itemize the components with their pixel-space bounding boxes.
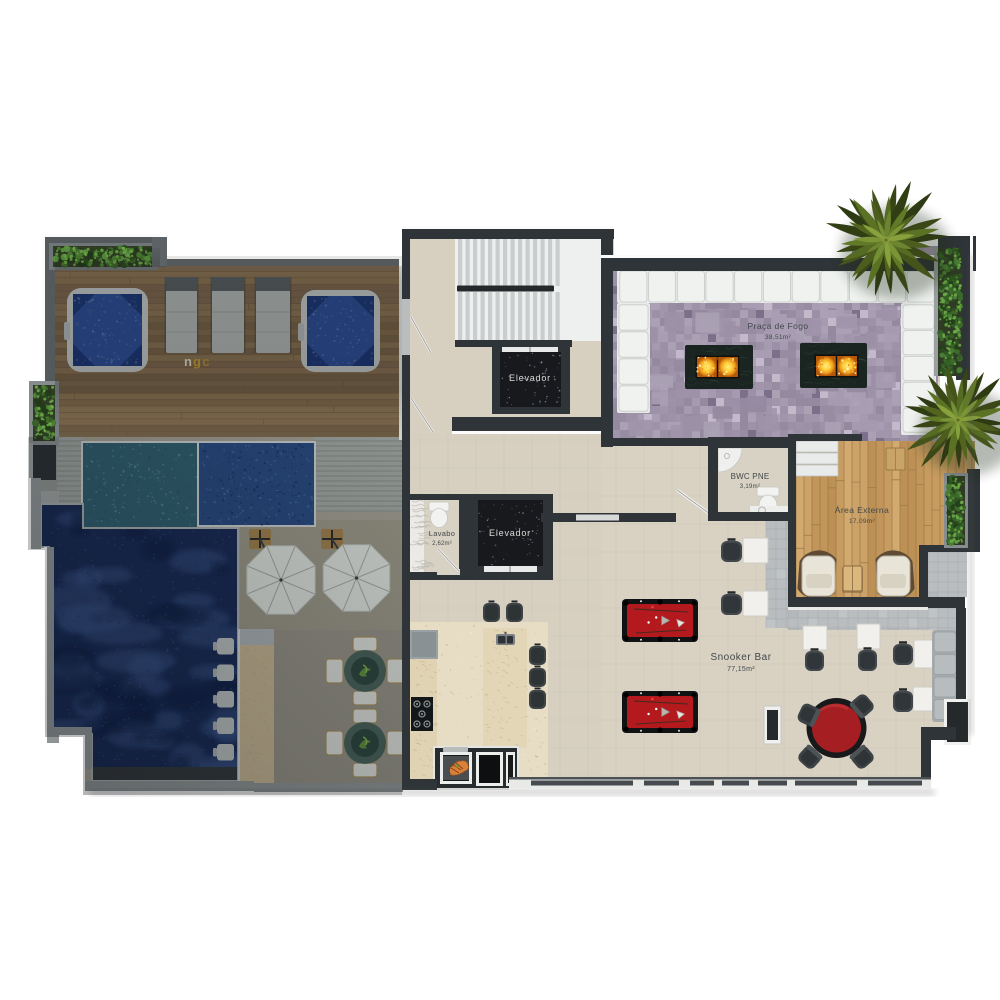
svg-text:Área Externa: Área Externa [835, 505, 889, 515]
svg-text:17,09m²: 17,09m² [849, 518, 875, 525]
svg-text:2,62m²: 2,62m² [432, 541, 452, 547]
svg-text:38,51m²: 38,51m² [765, 334, 791, 341]
svg-text:3,19m²: 3,19m² [740, 484, 760, 490]
svg-text:BWC PNE: BWC PNE [731, 472, 770, 481]
svg-text:Praça de Fogo: Praça de Fogo [748, 321, 809, 331]
svg-text:77,15m²: 77,15m² [727, 666, 755, 673]
svg-text:Snooker Bar: Snooker Bar [710, 652, 771, 663]
svg-text:Elevador: Elevador [509, 373, 551, 383]
svg-text:Lavabo: Lavabo [429, 529, 455, 538]
svg-text:Elevador: Elevador [489, 528, 531, 538]
